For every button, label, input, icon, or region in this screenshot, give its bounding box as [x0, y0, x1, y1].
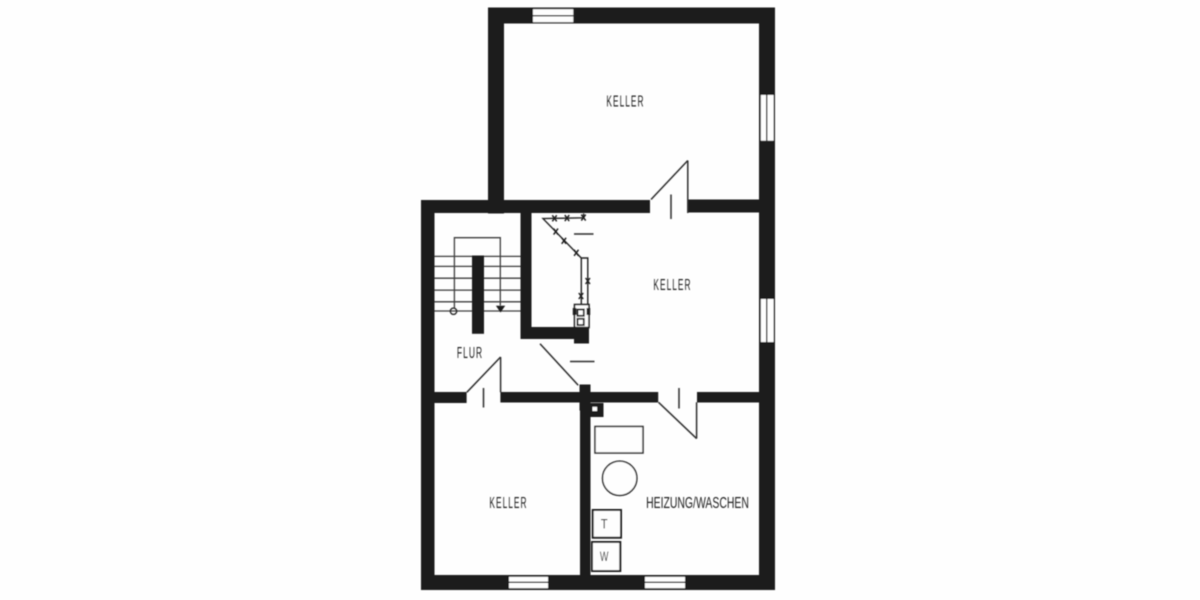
svg-text:FLUR: FLUR [457, 343, 483, 362]
svg-text:KELLER: KELLER [653, 275, 691, 294]
svg-text:T: T [601, 516, 608, 531]
svg-text:HEIZUNG/WASCHEN: HEIZUNG/WASCHEN [646, 494, 749, 512]
svg-text:KELLER: KELLER [606, 91, 644, 110]
svg-text:KELLER: KELLER [489, 493, 527, 512]
svg-text:W: W [600, 548, 609, 565]
